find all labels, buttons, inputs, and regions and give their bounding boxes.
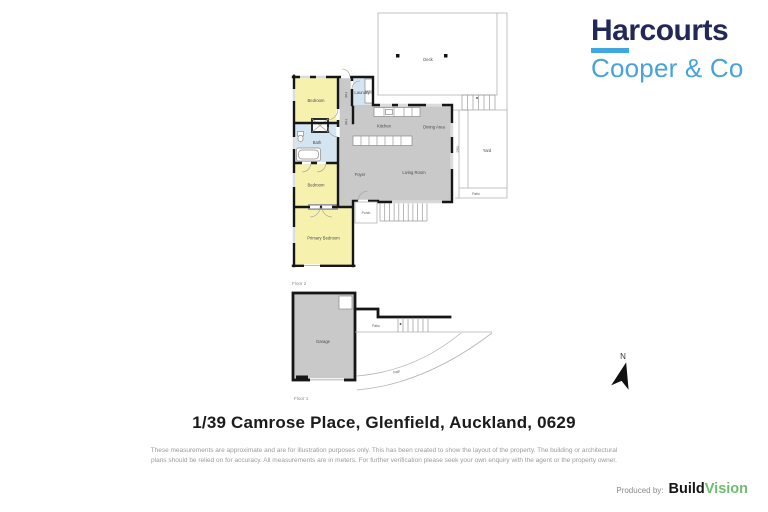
disclaimer-line-2: plans should be relied on for accuracy. …	[0, 456, 768, 466]
logo-subtitle: Cooper & Co	[591, 55, 751, 81]
walls-floor1	[355, 309, 450, 317]
bedroom-2-label: Bedroom	[308, 183, 326, 188]
patio-upper-label: Patio	[472, 192, 480, 196]
deck-area	[378, 13, 497, 95]
floor-1-caption: Floor 1	[294, 396, 309, 401]
deck-post	[444, 54, 448, 58]
compass: N	[601, 353, 645, 396]
disclaimer-text: These measurements are approximate and a…	[0, 446, 768, 466]
entry-stairs	[380, 204, 427, 222]
deck-post	[396, 54, 400, 58]
exterior-stairs-lower	[398, 318, 428, 332]
floor-plan-drawing: Deck Bedroom Laundry Hall Hall Bath Kitc…	[280, 5, 540, 405]
primary-bedroom-label: Primary Bedroom	[307, 236, 340, 241]
logo-title: Harcourts	[591, 16, 751, 46]
produced-by-label: Produced by:	[616, 486, 663, 495]
harcourts-logo: Harcourts Cooper & Co	[591, 16, 751, 81]
foyer-label: Foyer	[355, 172, 366, 177]
stair-start-dot	[476, 97, 478, 99]
exterior-stairs-upper	[462, 95, 495, 110]
garage-corner-nook	[339, 296, 352, 309]
buildvision-build: Build	[669, 481, 705, 497]
producer-credit: Produced by: BuildVision	[616, 481, 748, 497]
deck-label: Deck	[423, 57, 433, 62]
north-label: N	[601, 353, 645, 361]
kitchen-label: Kitchen	[377, 124, 392, 129]
disclaimer-line-1: These measurements are approximate and a…	[0, 446, 768, 456]
hall-upper-label: Hall	[344, 92, 348, 98]
flyer-page: Harcourts Cooper & Co	[0, 0, 768, 512]
hall-lower-label: Hall	[344, 119, 348, 125]
property-address: 1/39 Camrose Place, Glenfield, Auckland,…	[0, 413, 768, 433]
yard-side-label: Yard	[456, 146, 460, 153]
floor-2-caption: Floor 2	[292, 281, 307, 286]
garage-label: Garage	[316, 339, 331, 344]
buildvision-vision: Vision	[705, 481, 748, 497]
living-kitchen-floor	[353, 105, 452, 202]
patio-lower-label: Patio	[372, 324, 380, 328]
buildvision-logo: BuildVision	[669, 481, 749, 497]
dining-label: Dining Area	[423, 125, 445, 130]
stair-start-dot-lower	[400, 323, 402, 325]
north-arrow-icon	[610, 361, 636, 391]
living-label: Living Room	[402, 170, 426, 175]
shower-box	[312, 119, 328, 132]
path-outline	[355, 332, 492, 390]
porch-label: Porch	[362, 211, 371, 215]
path-label: Path	[393, 369, 401, 375]
yard-label: Yard	[483, 148, 492, 153]
bedroom-1-label: Bedroom	[308, 98, 326, 103]
bath-label: Bath	[313, 140, 322, 145]
garage-step	[296, 376, 308, 380]
laundry-label: Laundry	[354, 90, 370, 95]
